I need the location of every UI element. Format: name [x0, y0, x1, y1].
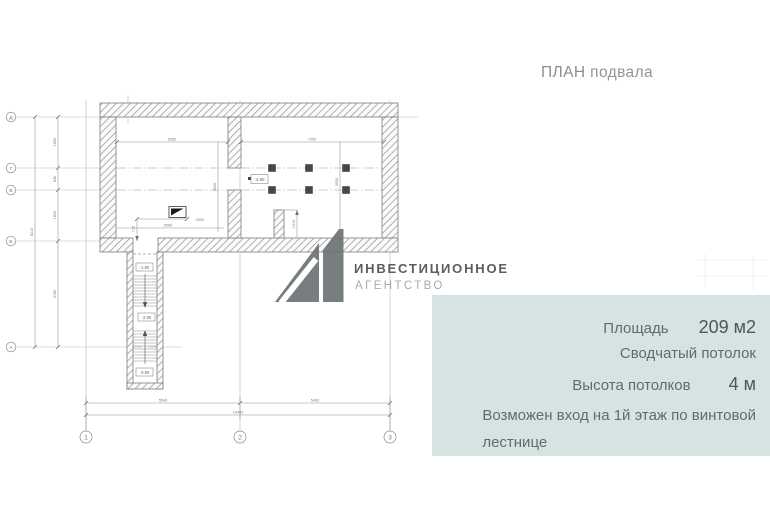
wall-left — [100, 117, 116, 238]
wall-bottom-right — [158, 238, 398, 252]
height-value: 4 м — [729, 374, 756, 395]
wall-bottom-left — [100, 238, 133, 252]
svg-text:5080: 5080 — [164, 224, 172, 228]
logo-line-agency: АГЕНТСТВО — [355, 280, 445, 292]
area-row: Площадь 209 м2 — [603, 317, 756, 345]
svg-text:1010: 1010 — [292, 220, 296, 228]
area-label: Площадь — [603, 320, 668, 337]
svg-text:Г: Г — [10, 166, 13, 172]
faint-sketch-top — [695, 252, 770, 292]
entrance-note-line2: лестнице — [482, 429, 756, 456]
axis-bubbles-bottom: 1 2 3 — [80, 431, 396, 443]
ceiling-type: Сводчатый потолок — [620, 345, 756, 362]
svg-text:5280: 5280 — [168, 138, 176, 142]
wall-interior-top — [228, 117, 241, 168]
height-label: Высота потолков — [572, 377, 690, 394]
level-tag-3: -3.80 — [140, 370, 150, 375]
ceiling-type-row: Сводчатый потолок — [620, 345, 756, 373]
svg-text:2420: 2420 — [196, 218, 204, 222]
wall-top — [100, 103, 398, 117]
page-title-word1: ПЛАН — [541, 64, 585, 81]
svg-text:830: 830 — [53, 176, 57, 182]
wall-interior-bottom — [228, 190, 241, 238]
svg-text:Б: Б — [9, 239, 12, 245]
area-value: 209 м2 — [699, 317, 756, 338]
dimension-texts: 5280 7050 3030 3030 5540 5400 10940 1800… — [30, 138, 339, 415]
sym-dim-arrow — [135, 236, 139, 241]
axis-bubbles-left: Д Г В Б А — [6, 112, 16, 352]
svg-text:5400: 5400 — [311, 399, 319, 403]
height-row: Высота потолков 4 м — [572, 374, 756, 402]
svg-text:3030: 3030 — [213, 183, 217, 191]
stair-wall-end — [127, 383, 163, 389]
svg-text:В: В — [9, 188, 12, 194]
svg-text:5540: 5540 — [159, 399, 167, 403]
entrance-note: Возможен вход на 1й этаж по винтовой лес… — [482, 402, 756, 456]
entry-symbol — [169, 207, 186, 218]
page-title-word2: подвала — [590, 64, 653, 81]
stair-level-tags: -1.80 -2.80 -3.80 — [136, 263, 155, 376]
logo-line-investment: ИНВЕСТИЦИОННОЕ — [354, 261, 509, 276]
stair-wall-left — [127, 252, 133, 389]
svg-text:7050: 7050 — [308, 138, 316, 142]
svg-text:10940: 10940 — [233, 411, 244, 415]
page-title: ПЛАН подвала — [541, 64, 653, 82]
stub-dim-arrow — [295, 210, 299, 215]
svg-text:710: 710 — [132, 226, 136, 232]
svg-text:3: 3 — [388, 435, 392, 442]
stair-wall-right — [157, 252, 163, 389]
svg-text:1: 1 — [84, 435, 88, 442]
svg-text:1800: 1800 — [53, 211, 57, 219]
info-panel: Площадь 209 м2 Сводчатый потолок Высота … — [432, 295, 770, 456]
room-level-text: -4.50 — [254, 177, 265, 182]
room-level-tag: -4.50 — [248, 175, 268, 184]
svg-text:2: 2 — [238, 435, 242, 442]
svg-text:3030: 3030 — [335, 178, 339, 186]
entrance-note-line1: Возможен вход на 1й этаж по винтовой — [482, 402, 756, 429]
level-tag-2: -2.80 — [142, 315, 152, 320]
wall-stub — [274, 210, 284, 238]
stair-arrow-down — [143, 302, 147, 308]
level-tag-1: -1.80 — [140, 265, 150, 270]
page: -1.80 -2.80 -3.80 -4.50 — [0, 0, 770, 510]
svg-text:3780: 3780 — [53, 290, 57, 298]
svg-text:1800: 1800 — [53, 138, 57, 146]
wall-right — [382, 117, 398, 238]
svg-text:8210: 8210 — [30, 228, 34, 236]
